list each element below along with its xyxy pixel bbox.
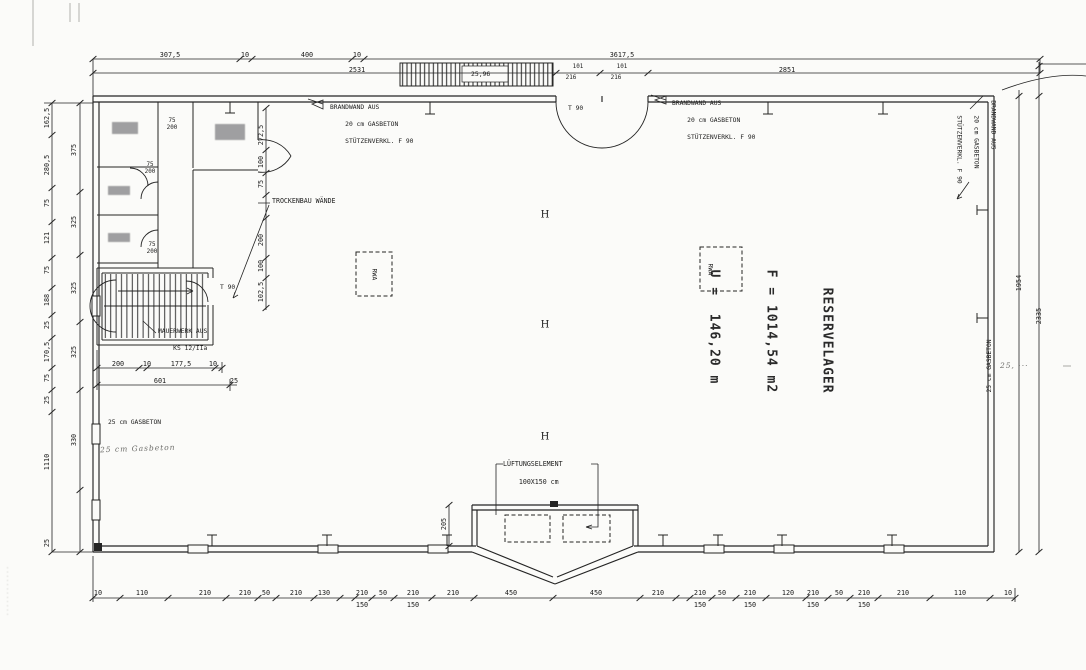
brandwand-label-left: BRANDWAND AUS 20 cm GASBETON STÜTZENVERK… [330, 104, 413, 147]
room-label-smudge [108, 186, 130, 195]
ramp-dimension: 25,96 [471, 70, 490, 79]
gasbeton-label-left: 25 cm GASBETON [108, 419, 161, 428]
reservelager-title-block: RESERVELAGER F = 1014,54 m2 U = 146,20 m [666, 270, 873, 530]
door-t90-label-stair: T 90 [220, 284, 235, 293]
brandwand-label-rotated: BRANDWAND AUS 20 cm GASBETON STÜTZENVERK… [954, 100, 997, 210]
rwa-label-left: RWA [370, 256, 379, 292]
trockenbau-label: TROCKENBAU WÄNDE [272, 197, 336, 206]
floor-plan-sheet: BRANDWAND AUS 20 cm GASBETON STÜTZENVERK… [0, 0, 1086, 670]
door-t90-label-top: T 90 [568, 105, 583, 114]
brandwand-label-right: BRANDWAND AUS 20 cm GASBETON STÜTZENVERK… [672, 100, 755, 143]
room-perimeter: U = 146,20 m [704, 270, 723, 530]
rwa-label-right: RWA [706, 251, 715, 287]
mauerwerk-label: MAUERWERK AUS KS 12/IIa [158, 328, 207, 354]
handwritten-note-right: 25, ··· [1000, 361, 1028, 370]
gasbeton-label-right: 25 cm GASBETON [986, 339, 995, 392]
room-name: RESERVELAGER [817, 270, 836, 530]
room-label-smudge [112, 122, 138, 134]
scan-watermark: ············ [4, 555, 12, 625]
room-label-smudge [108, 233, 130, 242]
room-label-smudge [215, 124, 245, 140]
lueftung-label: LÜFTUNGSELEMENT 100X150 cm [503, 460, 563, 487]
room-area: F = 1014,54 m2 [761, 270, 780, 530]
